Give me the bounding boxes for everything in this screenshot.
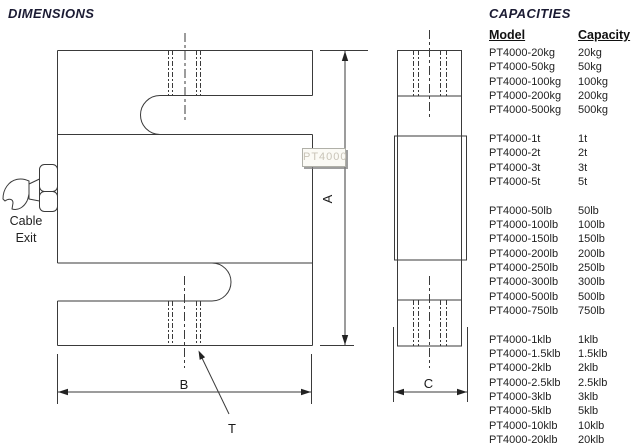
capacity-group: PT4000-20kg20kgPT4000-50kg50kgPT4000-100… xyxy=(489,46,631,118)
capacity-cell: 200lb xyxy=(578,247,631,261)
capacity-row: PT4000-2t2t xyxy=(489,146,631,160)
side-view xyxy=(395,30,467,368)
model-cell: PT4000-200kg xyxy=(489,89,578,103)
model-cell: PT4000-10klb xyxy=(489,419,578,433)
capacity-group: PT4000-50lb50lbPT4000-100lb100lbPT4000-1… xyxy=(489,204,631,319)
capacity-row: PT4000-300lb300lb xyxy=(489,275,631,289)
front-view xyxy=(58,33,313,368)
capacity-row: PT4000-10klb10klb xyxy=(489,419,631,433)
capacity-cell: 5klb xyxy=(578,404,631,418)
capacity-cell: 150lb xyxy=(578,232,631,246)
capacity-cell: 200kg xyxy=(578,89,631,103)
capacity-cell: 50lb xyxy=(578,204,631,218)
capacity-cell: 2.5klb xyxy=(578,376,631,390)
capacity-row: PT4000-100lb100lb xyxy=(489,218,631,232)
capacity-row: PT4000-5t5t xyxy=(489,175,631,189)
pt4000-watermark: PT4000 xyxy=(302,148,346,167)
capacity-row: PT4000-750lb750lb xyxy=(489,304,631,318)
capacity-cell: 750lb xyxy=(578,304,631,318)
side-outline xyxy=(395,51,467,347)
thread-arrowhead xyxy=(199,351,206,360)
model-cell: PT4000-750lb xyxy=(489,304,578,318)
model-cell: PT4000-1klb xyxy=(489,333,578,347)
dim-label-a: A xyxy=(320,194,335,203)
capacity-cell: 100kg xyxy=(578,75,631,89)
front-slot-arcs xyxy=(141,96,231,302)
model-cell: PT4000-2klb xyxy=(489,361,578,375)
model-cell: PT4000-2.5klb xyxy=(489,376,578,390)
capacity-row: PT4000-50kg50kg xyxy=(489,60,631,74)
model-cell: PT4000-300lb xyxy=(489,275,578,289)
capacity-row: PT4000-500kg500kg xyxy=(489,103,631,117)
model-cell: PT4000-50lb xyxy=(489,204,578,218)
capacity-cell: 50kg xyxy=(578,60,631,74)
capacity-group: PT4000-1t1tPT4000-2t2tPT4000-3t3tPT4000-… xyxy=(489,132,631,189)
capacity-row: PT4000-20klb20klb xyxy=(489,433,631,445)
model-cell: PT4000-250lb xyxy=(489,261,578,275)
capacity-row: PT4000-20kg20kg xyxy=(489,46,631,60)
capacity-cell: 100lb xyxy=(578,218,631,232)
capacity-cell: 5t xyxy=(578,175,631,189)
capacity-cell: 3t xyxy=(578,161,631,175)
capacity-cell: 2klb xyxy=(578,361,631,375)
dimension-a: A xyxy=(320,51,368,346)
capacity-row: PT4000-5klb5klb xyxy=(489,404,631,418)
dim-c-arrow-left xyxy=(394,389,404,395)
model-cell: PT4000-3t xyxy=(489,161,578,175)
dim-label-b: B xyxy=(180,377,189,392)
model-cell: PT4000-5klb xyxy=(489,404,578,418)
capacity-table-header: Model Capacity xyxy=(489,28,631,43)
capacity-row: PT4000-200lb200lb xyxy=(489,247,631,261)
model-cell: PT4000-2t xyxy=(489,146,578,160)
dim-c-arrow-right xyxy=(457,389,467,395)
capacity-cell: 500kg xyxy=(578,103,631,117)
capacities-table: Model Capacity PT4000-20kg20kgPT4000-50k… xyxy=(489,28,631,445)
model-cell: PT4000-500kg xyxy=(489,103,578,117)
capacity-cell: 2t xyxy=(578,146,631,160)
gland-nut-upper xyxy=(40,165,58,192)
model-cell: PT4000-3klb xyxy=(489,390,578,404)
dim-label-c: C xyxy=(424,376,433,391)
capacity-row: PT4000-150lb150lb xyxy=(489,232,631,246)
thread-callout: T xyxy=(199,351,237,437)
dim-a-arrow-down xyxy=(342,335,348,345)
capacity-row: PT4000-500lb500lb xyxy=(489,290,631,304)
model-cell: PT4000-50kg xyxy=(489,60,578,74)
capacity-cell: 20klb xyxy=(578,433,631,445)
capacity-row: PT4000-100kg100kg xyxy=(489,75,631,89)
capacity-column-header: Capacity xyxy=(578,28,631,43)
model-cell: PT4000-500lb xyxy=(489,290,578,304)
model-column-header: Model xyxy=(489,28,578,43)
dimension-c: C xyxy=(394,327,468,402)
capacity-row: PT4000-3klb3klb xyxy=(489,390,631,404)
model-cell: PT4000-100lb xyxy=(489,218,578,232)
capacity-row: PT4000-1klb1klb xyxy=(489,333,631,347)
capacity-groups: PT4000-20kg20kgPT4000-50kg50kgPT4000-100… xyxy=(489,46,631,445)
cable xyxy=(3,179,29,210)
capacity-cell: 10klb xyxy=(578,419,631,433)
capacity-group: PT4000-1klb1klbPT4000-1.5klb1.5klbPT4000… xyxy=(489,333,631,445)
capacity-row: PT4000-3t3t xyxy=(489,161,631,175)
model-cell: PT4000-1.5klb xyxy=(489,347,578,361)
datasheet-page: DIMENSIONS CAPACITIES A xyxy=(0,0,634,445)
thread-leader-line xyxy=(202,358,229,414)
capacity-row: PT4000-2klb2klb xyxy=(489,361,631,375)
cable-gland xyxy=(3,165,58,212)
capacity-row: PT4000-250lb250lb xyxy=(489,261,631,275)
capacity-row: PT4000-1t1t xyxy=(489,132,631,146)
capacity-cell: 300lb xyxy=(578,275,631,289)
capacity-cell: 250lb xyxy=(578,261,631,275)
thread-label-t: T xyxy=(228,421,236,436)
front-centerlines xyxy=(185,33,186,368)
dim-a-arrow-up xyxy=(342,51,348,61)
dim-b-arrow-right xyxy=(301,389,311,395)
gland-nut-lower xyxy=(40,192,58,212)
capacity-row: PT4000-200kg200kg xyxy=(489,89,631,103)
gland-taper xyxy=(29,179,40,201)
capacity-cell: 3klb xyxy=(578,390,631,404)
model-cell: PT4000-20kg xyxy=(489,46,578,60)
capacity-cell: 20kg xyxy=(578,46,631,60)
model-cell: PT4000-100kg xyxy=(489,75,578,89)
model-cell: PT4000-5t xyxy=(489,175,578,189)
model-cell: PT4000-20klb xyxy=(489,433,578,445)
capacity-row: PT4000-1.5klb1.5klb xyxy=(489,347,631,361)
capacity-cell: 500lb xyxy=(578,290,631,304)
capacity-row: PT4000-50lb50lb xyxy=(489,204,631,218)
cable-exit-label: Cable Exit xyxy=(0,213,52,247)
capacity-cell: 1klb xyxy=(578,333,631,347)
capacity-cell: 1t xyxy=(578,132,631,146)
dim-b-arrow-left xyxy=(58,389,68,395)
model-cell: PT4000-200lb xyxy=(489,247,578,261)
capacity-row: PT4000-2.5klb2.5klb xyxy=(489,376,631,390)
model-cell: PT4000-1t xyxy=(489,132,578,146)
model-cell: PT4000-150lb xyxy=(489,232,578,246)
capacity-cell: 1.5klb xyxy=(578,347,631,361)
